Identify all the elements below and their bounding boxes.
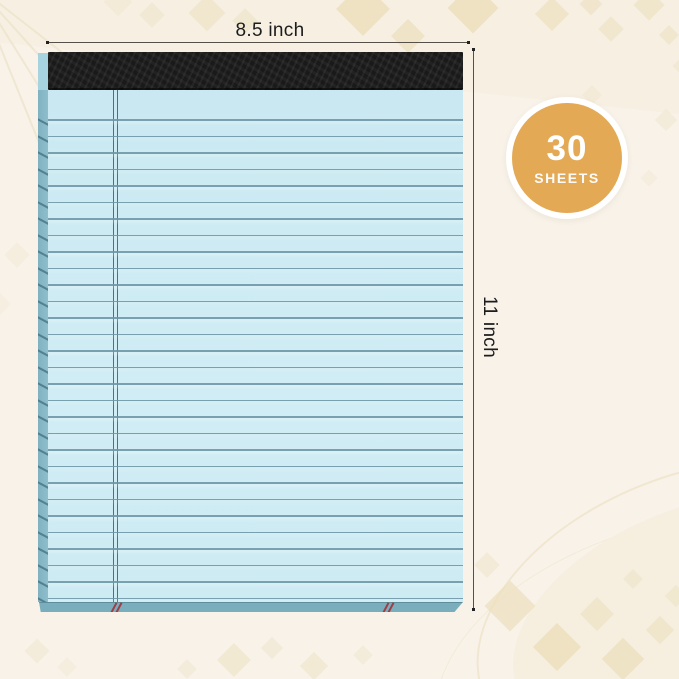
notepad-bottom-edge: [39, 602, 463, 612]
ruled-line: [48, 317, 463, 319]
ruled-line: [48, 367, 463, 369]
diamond-decor: [57, 657, 77, 677]
diamond-decor: [474, 552, 499, 577]
sheet-count-unit: SHEETS: [534, 170, 600, 186]
diamond-decor: [177, 659, 197, 679]
diamond-decor: [217, 643, 251, 677]
spine-notch: [38, 316, 48, 324]
ruled-line: [48, 466, 463, 468]
ruled-line: [48, 581, 463, 583]
dimension-endpoint: [472, 608, 475, 611]
spine-notch: [38, 431, 48, 439]
ruled-line: [48, 482, 463, 484]
spine-notch: [38, 514, 48, 522]
ruled-line: [48, 284, 463, 286]
spine-notch: [38, 283, 48, 291]
spine-notch: [38, 349, 48, 357]
spine-notch: [38, 217, 48, 225]
spine-notch: [38, 547, 48, 555]
ruled-line: [48, 268, 463, 270]
diamond-decor: [4, 242, 29, 267]
spine-notch: [38, 299, 48, 307]
ruled-line: [48, 218, 463, 220]
notepad-side-edge: [38, 90, 48, 602]
spine-notch: [38, 596, 48, 602]
notepad-side-edge-top: [38, 53, 48, 90]
ruled-line: [48, 235, 463, 237]
diamond-decor: [0, 293, 11, 316]
ruled-line: [48, 334, 463, 336]
ruled-line: [48, 433, 463, 435]
spine-notch: [38, 497, 48, 505]
ruled-line: [48, 202, 463, 204]
product-image-canvas: 8.5 inch 11 inch 30 SHEETS: [0, 0, 679, 679]
spine-notch: [38, 250, 48, 258]
ruled-line: [48, 532, 463, 534]
ruled-line: [48, 400, 463, 402]
diamond-decor: [641, 170, 658, 187]
ruled-line: [48, 169, 463, 171]
spine-notch: [38, 481, 48, 489]
spine-notch: [38, 134, 48, 142]
dimension-endpoint: [46, 41, 49, 44]
sheet-count-number: 30: [547, 131, 588, 166]
ruled-line: [48, 598, 463, 600]
sheet-count-badge: 30 SHEETS: [506, 97, 628, 219]
ruled-line: [48, 449, 463, 451]
width-dimension-label: 8.5 inch: [60, 20, 480, 42]
ruled-line: [48, 251, 463, 253]
spine-notch: [38, 233, 48, 241]
diamond-decor: [353, 645, 373, 665]
diamond-decor: [300, 652, 328, 679]
margin-line: [117, 90, 118, 602]
margin-line: [113, 90, 114, 602]
ruled-line: [48, 136, 463, 138]
spine-notch: [38, 382, 48, 390]
spine-notch: [38, 580, 48, 588]
diamond-decor: [24, 638, 49, 663]
notepad-binding-strip: [48, 52, 463, 90]
width-dimension-line: [48, 42, 468, 43]
spine-notch: [38, 184, 48, 192]
spine-notch: [38, 530, 48, 538]
ruled-line: [48, 152, 463, 154]
spine-notch: [38, 118, 48, 126]
ruled-line: [48, 185, 463, 187]
ruled-line: [48, 416, 463, 418]
spine-notch: [38, 167, 48, 175]
ruled-line: [48, 548, 463, 550]
ruled-line: [48, 515, 463, 517]
height-dimension-line: [473, 50, 474, 609]
ruled-line: [48, 350, 463, 352]
diamond-decor: [261, 637, 284, 660]
spine-notch: [38, 464, 48, 472]
spine-notch: [38, 332, 48, 340]
ruled-line: [48, 119, 463, 121]
sheet-count-badge-circle: 30 SHEETS: [512, 103, 622, 213]
dimension-endpoint: [472, 48, 475, 51]
spine-notch: [38, 398, 48, 406]
height-dimension-label: 11 inch: [478, 287, 500, 367]
notepad-paper: [48, 90, 463, 602]
ruled-line: [48, 499, 463, 501]
spine-notch: [38, 448, 48, 456]
spine-notch: [38, 151, 48, 159]
ruled-line: [48, 383, 463, 385]
spine-notch: [38, 365, 48, 373]
spine-notch: [38, 563, 48, 571]
spine-notch: [38, 415, 48, 423]
spine-notch: [38, 200, 48, 208]
spine-notch: [38, 266, 48, 274]
ruled-line: [48, 565, 463, 567]
ruled-line: [48, 301, 463, 303]
